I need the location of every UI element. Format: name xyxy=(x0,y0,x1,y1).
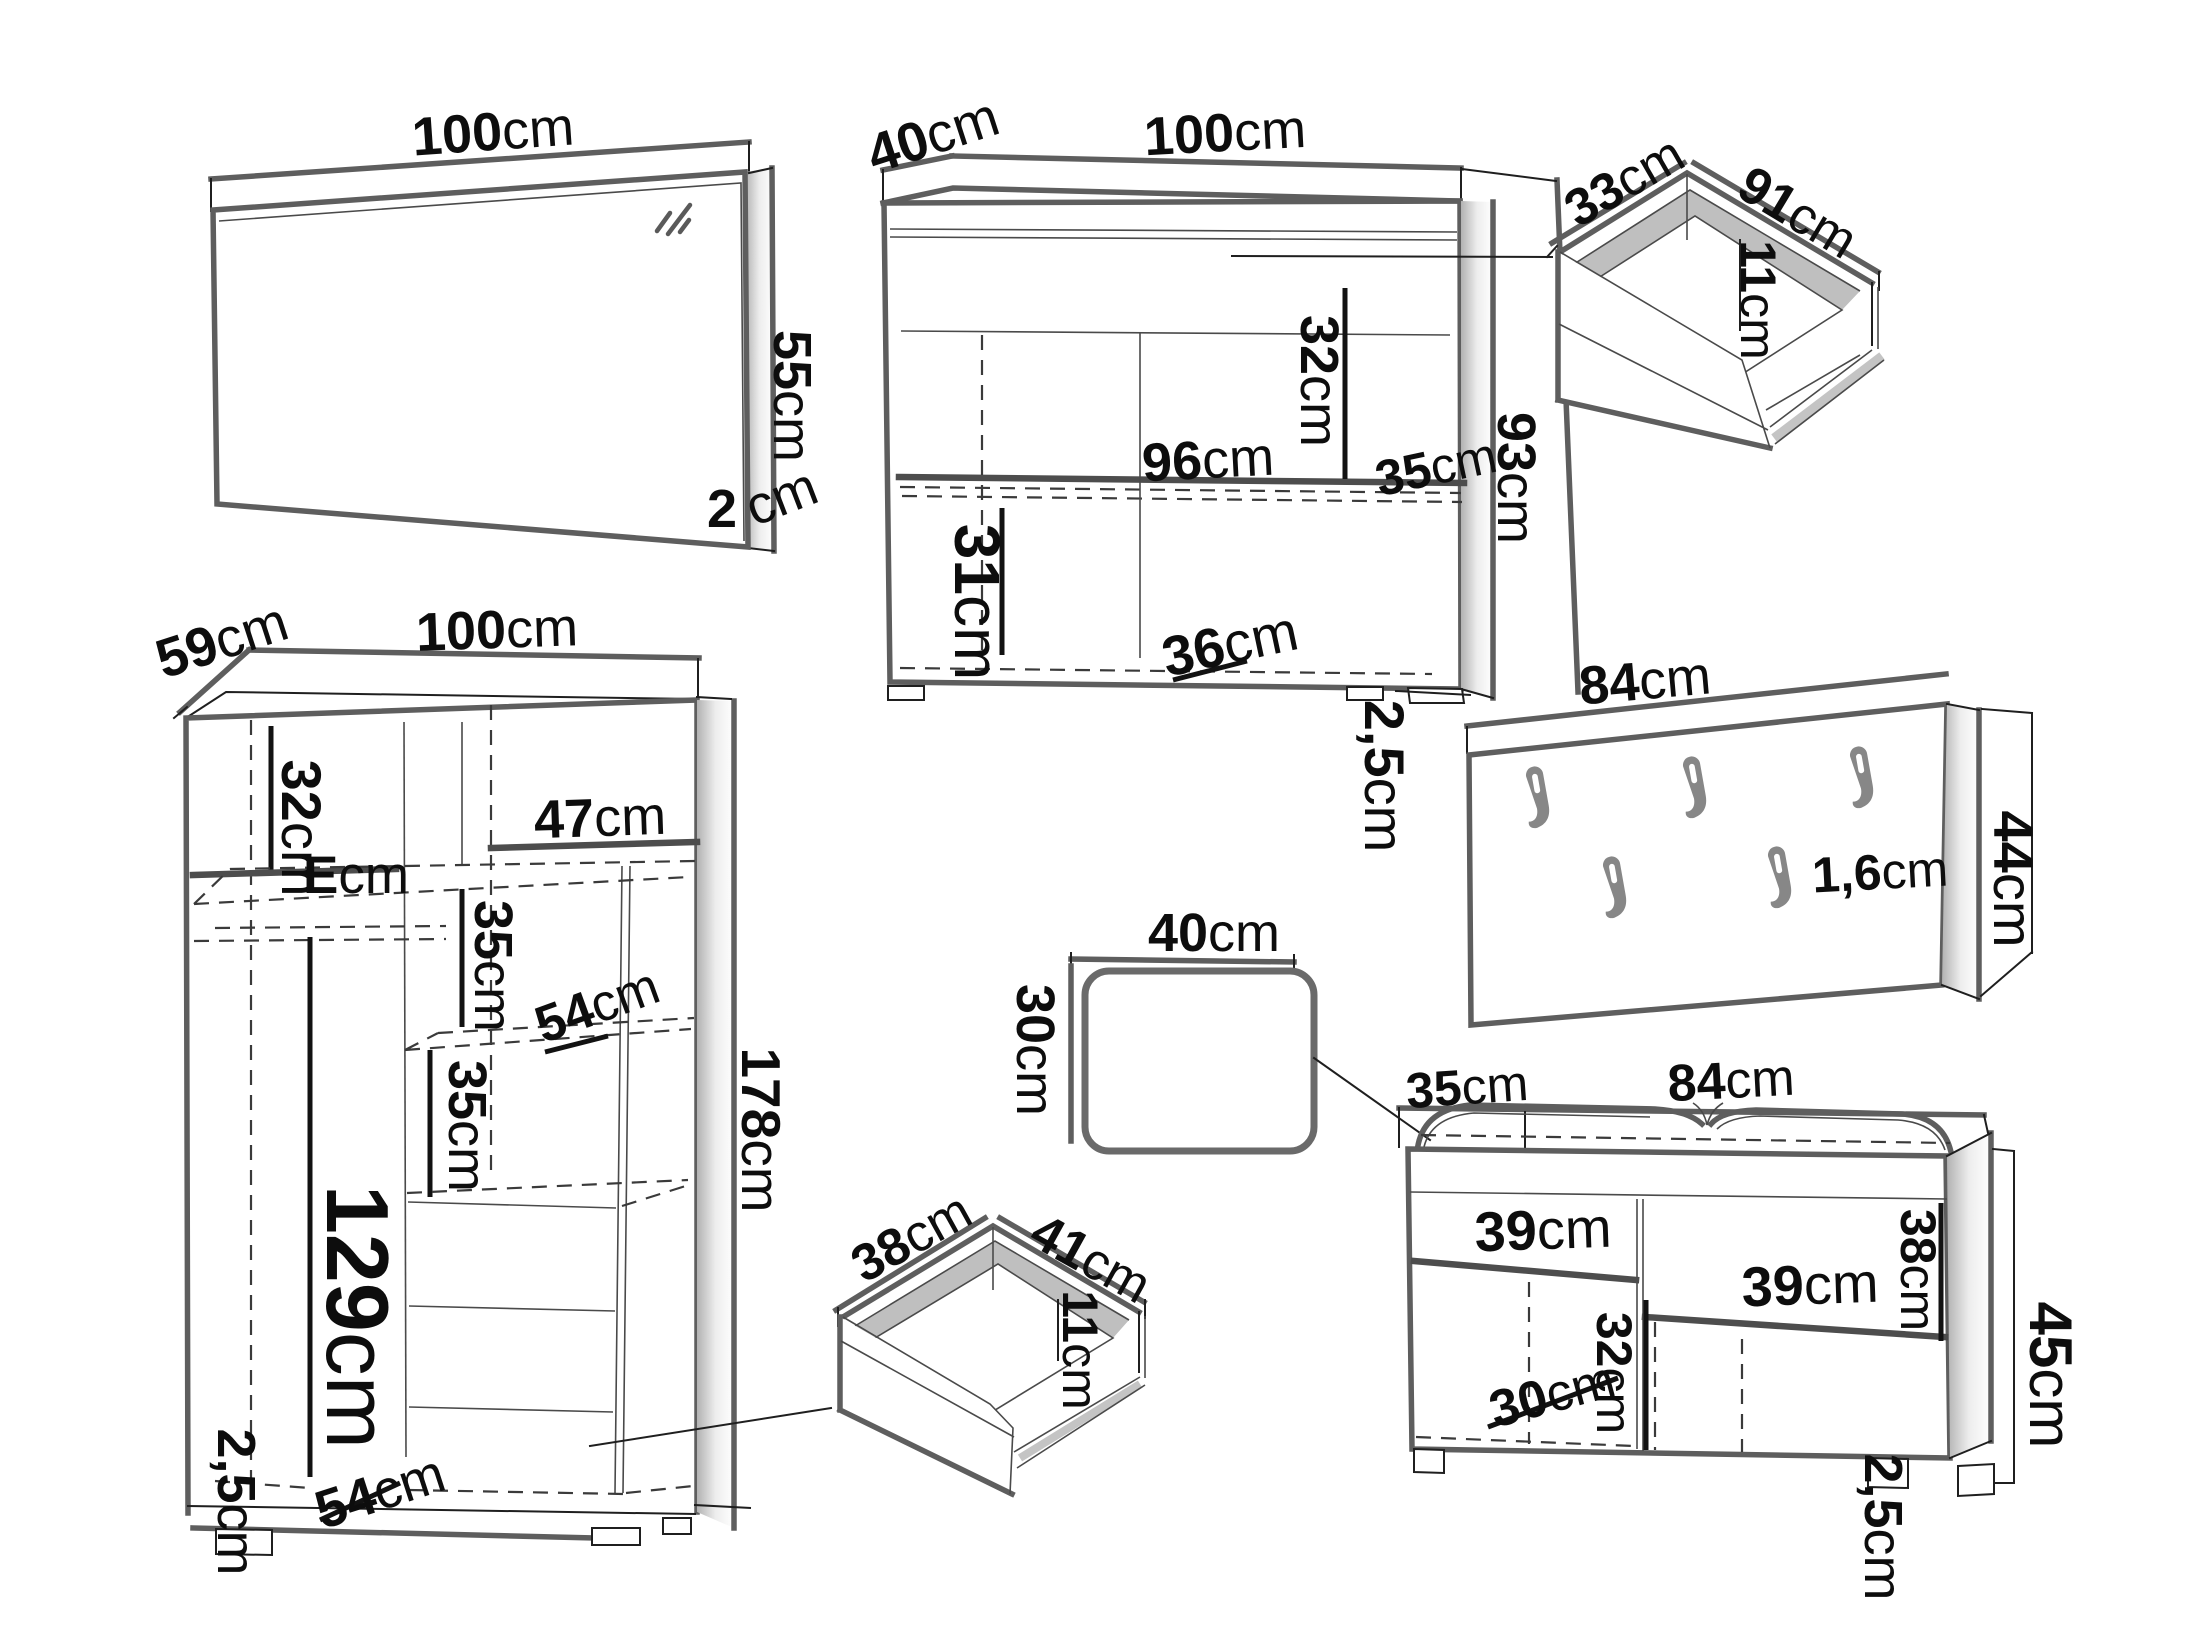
svg-text:32cm: 32cm xyxy=(1289,315,1349,447)
svg-text:1,6cm: 1,6cm xyxy=(1811,840,1950,903)
svg-text:96cm: 96cm xyxy=(1141,427,1276,494)
svg-text:2,5cm: 2,5cm xyxy=(1853,1453,1913,1600)
svg-text:35cm: 35cm xyxy=(437,1060,497,1192)
svg-text:100cm: 100cm xyxy=(410,96,576,167)
svg-text:2: 2 xyxy=(707,479,737,539)
svg-text:2,5cm: 2,5cm xyxy=(1353,700,1416,853)
svg-text:30cm: 30cm xyxy=(1005,984,1065,1116)
svg-text:178cm: 178cm xyxy=(730,1047,792,1212)
svg-text:35cm: 35cm xyxy=(463,900,523,1032)
svg-text:39cm: 39cm xyxy=(1740,1251,1879,1319)
svg-text:35cm: 35cm xyxy=(1404,1055,1530,1119)
svg-text:31cm: 31cm xyxy=(941,524,1013,681)
svg-text:2,5cm: 2,5cm xyxy=(206,1428,266,1575)
svg-text:93cm: 93cm xyxy=(1486,412,1546,544)
svg-text:39cm: 39cm xyxy=(1473,1196,1612,1264)
svg-text:Ecm: Ecm xyxy=(303,846,409,905)
svg-text:38cm: 38cm xyxy=(1890,1209,1946,1331)
svg-text:100cm: 100cm xyxy=(1142,99,1307,167)
svg-text:11cm: 11cm xyxy=(1052,1290,1108,1410)
svg-text:44cm: 44cm xyxy=(1982,811,2045,948)
svg-text:45cm: 45cm xyxy=(2017,1302,2084,1449)
svg-text:40cm: 40cm xyxy=(1148,903,1280,963)
svg-text:84cm: 84cm xyxy=(1577,645,1714,716)
svg-text:100cm: 100cm xyxy=(415,597,579,663)
svg-text:55cm: 55cm xyxy=(762,330,822,462)
svg-text:11cm: 11cm xyxy=(1730,240,1786,360)
svg-text:84cm: 84cm xyxy=(1666,1049,1796,1114)
svg-text:47cm: 47cm xyxy=(533,786,667,851)
svg-text:129cm: 129cm xyxy=(308,1185,407,1449)
